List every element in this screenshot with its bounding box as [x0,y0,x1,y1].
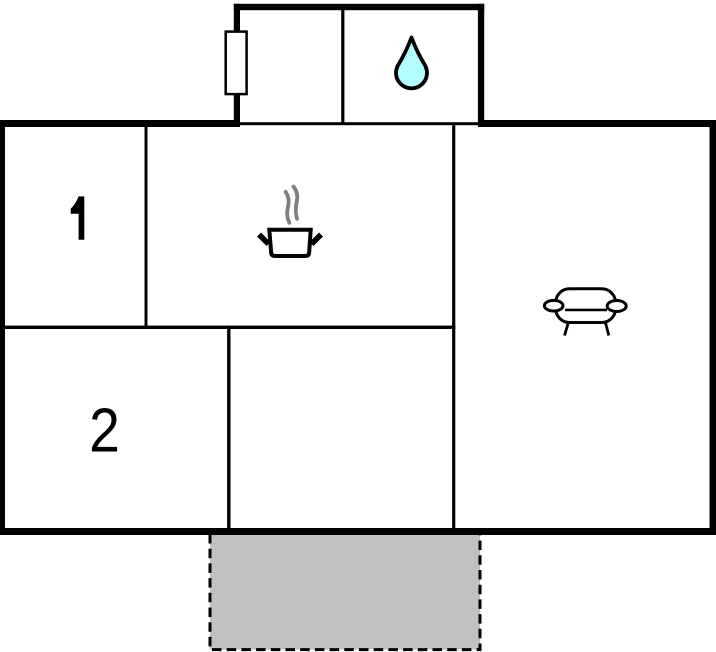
svg-text:2: 2 [89,397,120,466]
